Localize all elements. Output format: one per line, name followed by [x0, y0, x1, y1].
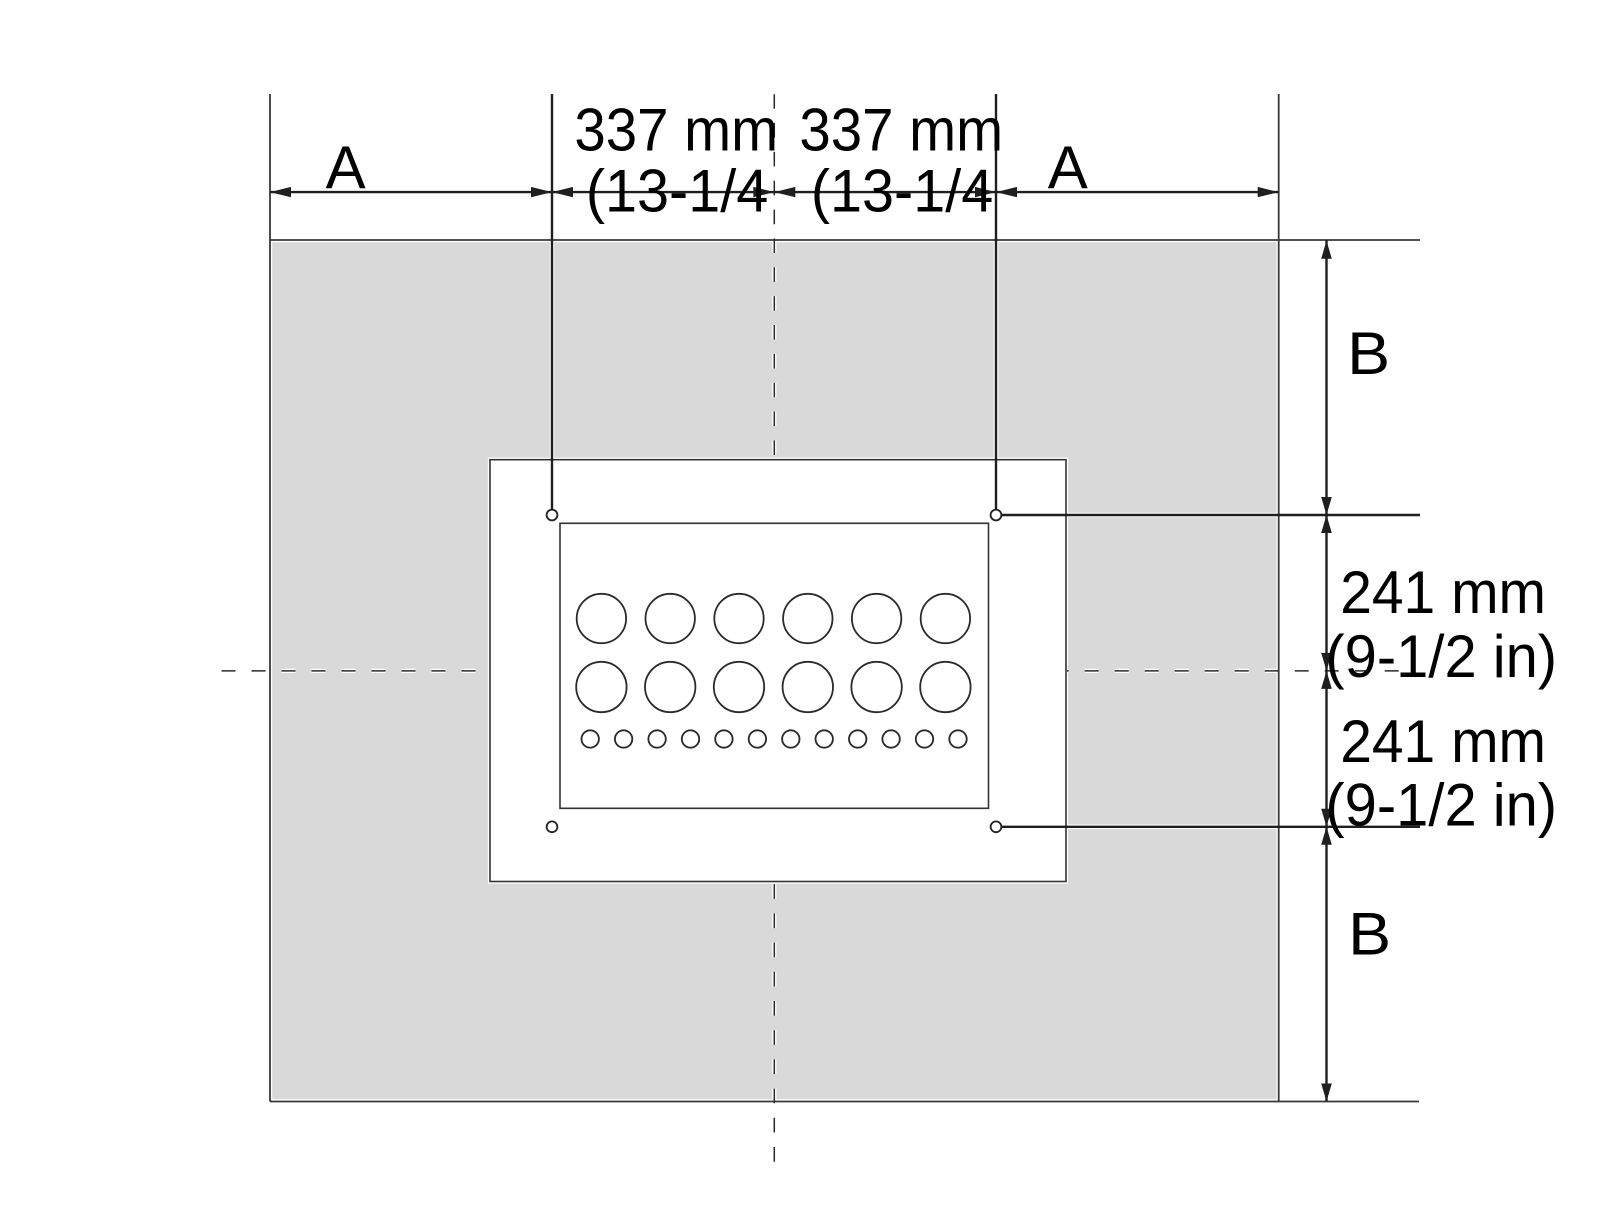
svg-text:(9-1/2 in): (9-1/2 in): [1325, 772, 1557, 839]
svg-text:241 mm: 241 mm: [1340, 559, 1546, 626]
svg-text:B: B: [1347, 320, 1390, 387]
svg-text:337 mm: 337 mm: [574, 97, 778, 164]
svg-text:241 mm: 241 mm: [1340, 708, 1546, 775]
svg-text:B: B: [1348, 901, 1391, 968]
svg-text:(13-1/4: (13-1/4: [811, 158, 993, 225]
svg-text:(9-1/2 in): (9-1/2 in): [1325, 623, 1557, 690]
svg-text:337 mm: 337 mm: [799, 97, 1003, 164]
svg-text:A: A: [326, 134, 366, 201]
svg-text:(13-1/4: (13-1/4: [586, 158, 768, 225]
svg-text:A: A: [1048, 134, 1088, 201]
